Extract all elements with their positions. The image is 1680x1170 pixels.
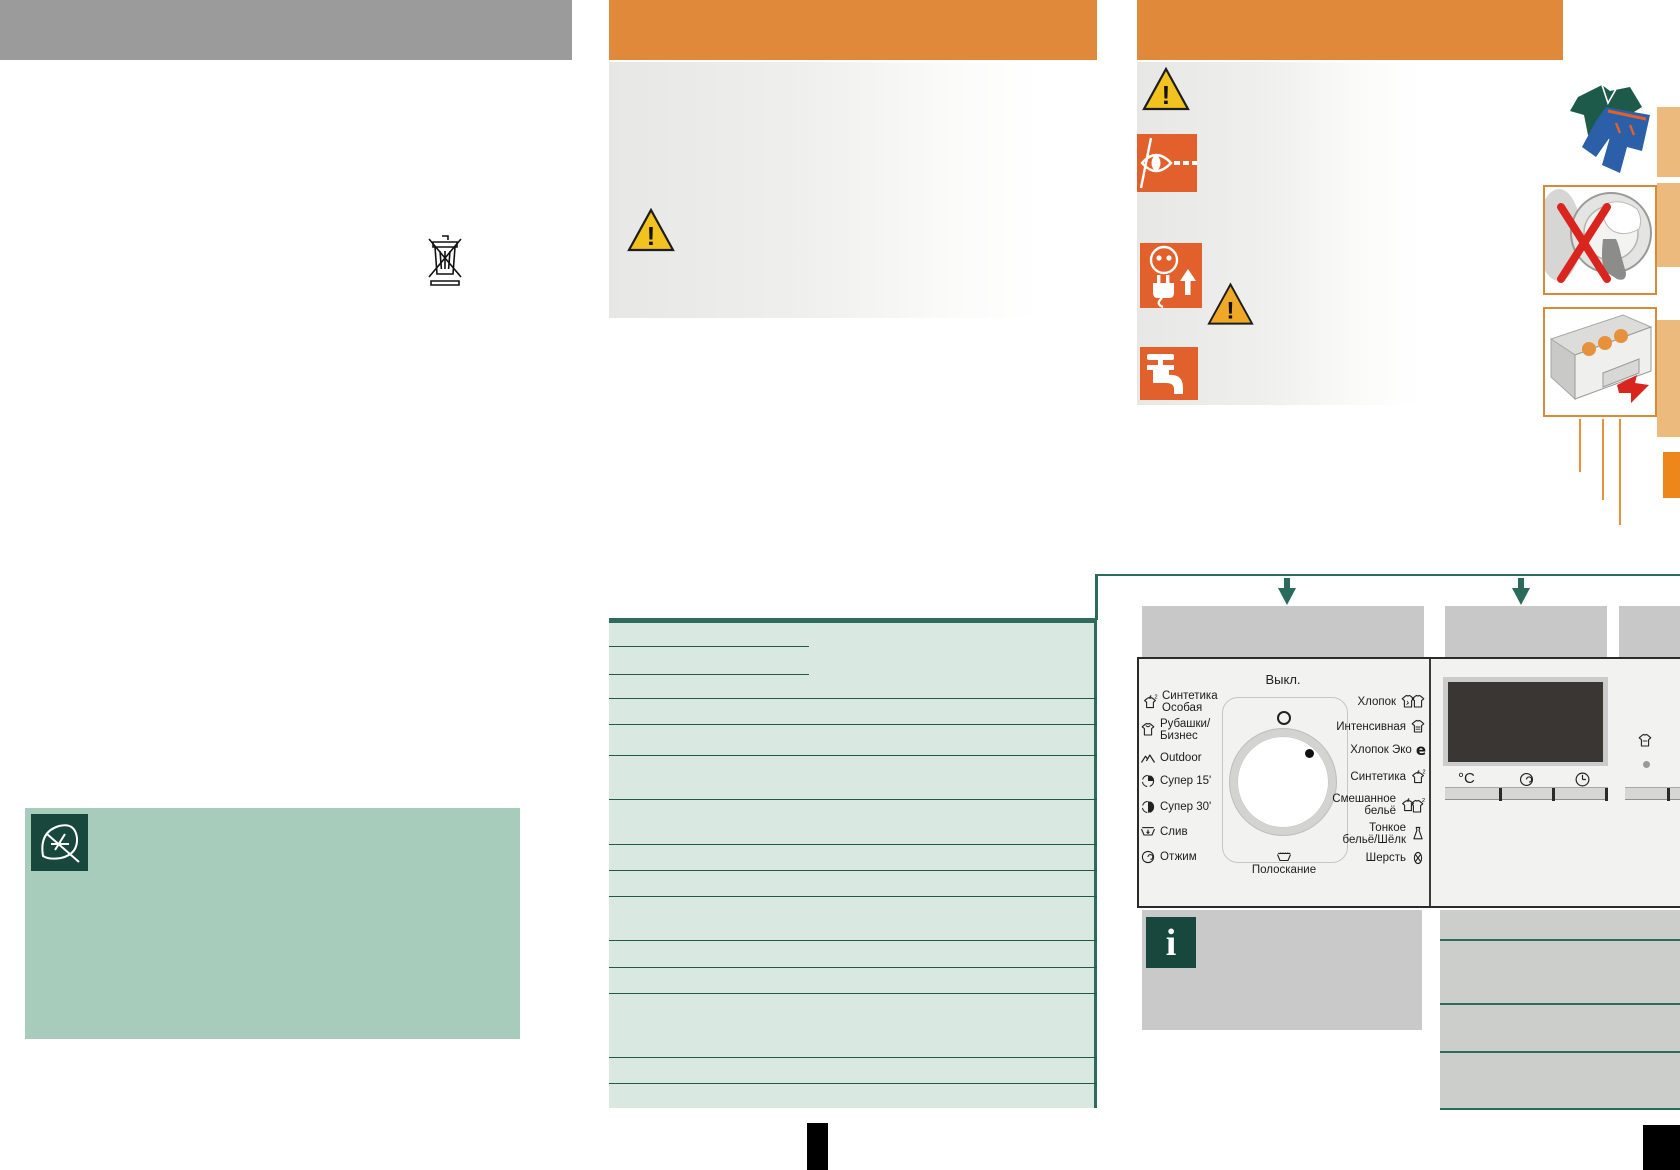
program-item: Хлопок Эко e <box>1284 744 1426 756</box>
unplug-icon <box>1140 243 1202 308</box>
display-screen <box>1448 682 1603 762</box>
page-number-box <box>1643 1125 1680 1170</box>
program-item: Шерсть <box>1284 850 1426 866</box>
shirts-business-icon <box>1140 722 1156 738</box>
intensive-icon <box>1410 719 1426 735</box>
overview-connector <box>1095 574 1098 620</box>
spin-icon <box>1140 849 1156 865</box>
table-divider <box>609 799 1097 800</box>
svg-text:!: ! <box>1226 298 1234 325</box>
program-item: Хлопок <box>1284 694 1426 710</box>
table-divider <box>609 755 1097 756</box>
delicates-silk-icon <box>1410 826 1426 842</box>
super-15-icon <box>1140 773 1156 789</box>
leaf-icon <box>31 814 88 871</box>
outdoor-icon <box>1140 750 1156 766</box>
warning-triangle-icon: ! <box>627 208 675 252</box>
program-item: Outdoor <box>1140 750 1260 766</box>
option-buttons <box>1445 787 1608 800</box>
svg-text:2: 2 <box>1423 770 1426 776</box>
table-divider <box>609 698 1097 699</box>
orange-accent-block <box>1657 320 1680 437</box>
info-icon: i <box>1146 917 1196 968</box>
program-item: Рубашки/Бизнес <box>1140 718 1260 742</box>
svg-text:2: 2 <box>1155 695 1158 701</box>
program-table <box>609 618 1097 1108</box>
start-led <box>1643 761 1650 768</box>
table-divider <box>609 844 1097 845</box>
callout-line <box>1619 419 1621 525</box>
orange-accent-block <box>1657 183 1680 267</box>
program-item: Супер 15' <box>1140 773 1260 789</box>
super-30-icon <box>1140 799 1156 815</box>
table-divider <box>609 1057 1097 1058</box>
warning-triangle-small-icon: ! <box>1207 281 1254 327</box>
table-divider <box>609 646 809 647</box>
table-divider <box>1440 939 1680 941</box>
button-divider <box>1552 788 1555 801</box>
right-page-header-bar <box>1137 0 1563 60</box>
table-divider <box>1440 1003 1680 1005</box>
callout-line <box>1579 419 1581 472</box>
laundry-clothes-image <box>1550 75 1665 180</box>
panel-section-divider <box>1429 659 1431 906</box>
table-divider <box>609 896 1097 897</box>
button-divider <box>1667 788 1670 801</box>
program-item: Слив <box>1140 824 1260 840</box>
panel-label-box <box>1142 606 1424 657</box>
button-divider <box>1605 788 1608 801</box>
dial-off-label: Выкл. <box>1238 672 1328 687</box>
drum-warning-image <box>1543 185 1657 295</box>
middle-text-panel <box>609 62 1040 318</box>
svg-text:!: ! <box>647 221 656 251</box>
option-buttons <box>1625 787 1680 800</box>
synthetics-special-icon: 2 <box>1142 694 1158 710</box>
warning-triangle-icon: ! <box>1142 66 1190 112</box>
manual-page: ! ! <box>0 0 1680 1170</box>
program-item: Интенсивная <box>1284 719 1426 735</box>
callout-line <box>1602 419 1604 500</box>
svg-text:!: ! <box>1162 80 1171 110</box>
table-divider <box>609 870 1097 871</box>
cotton-icon <box>1400 694 1426 710</box>
connector-arrow-icon <box>1512 578 1530 605</box>
middle-page-header-bar <box>609 0 1097 60</box>
eco-tip-box <box>25 808 520 1039</box>
svg-text:2: 2 <box>1422 798 1425 804</box>
program-item: Смешанноебельё 2 <box>1284 793 1426 817</box>
water-tap-icon <box>1140 347 1198 400</box>
spin-speed-icon <box>1518 771 1535 788</box>
connector-arrow-icon <box>1278 578 1296 605</box>
drain-icon <box>1140 824 1156 840</box>
program-item: 2 СинтетикаОсобая <box>1142 690 1262 714</box>
wool-icon <box>1410 850 1426 866</box>
table-divider <box>609 940 1097 941</box>
detergent-drawer-image <box>1543 307 1657 417</box>
weee-bin-icon <box>426 230 464 288</box>
table-divider <box>1440 1051 1680 1053</box>
button-divider <box>1499 788 1502 801</box>
table-divider <box>609 1083 1097 1084</box>
overview-connector <box>1096 574 1680 576</box>
page-number-box <box>807 1123 828 1170</box>
time-icon <box>1574 771 1591 788</box>
orange-accent-block-small <box>1663 452 1680 498</box>
panel-label-box <box>1445 606 1607 657</box>
temperature-label: °C <box>1458 770 1475 787</box>
panel-label-box <box>1619 606 1680 657</box>
program-item: Тонкоебельё/Шёлк <box>1284 822 1426 846</box>
program-item: Супер 30' <box>1140 799 1260 815</box>
eye-caution-icon <box>1137 134 1197 192</box>
program-item: Отжим <box>1140 849 1260 865</box>
table-divider <box>609 967 1097 968</box>
table-divider <box>609 993 1097 994</box>
program-item: Синтетика 2 <box>1284 769 1426 785</box>
synthetics-icon: 2 <box>1410 769 1426 785</box>
left-page-header-bar <box>0 0 572 60</box>
cotton-eco-icon: e <box>1416 744 1426 756</box>
table-divider <box>609 674 809 675</box>
table-divider <box>609 724 1097 725</box>
start-shirt-icon <box>1637 733 1653 749</box>
mixed-laundry-icon: 2 <box>1400 797 1426 813</box>
